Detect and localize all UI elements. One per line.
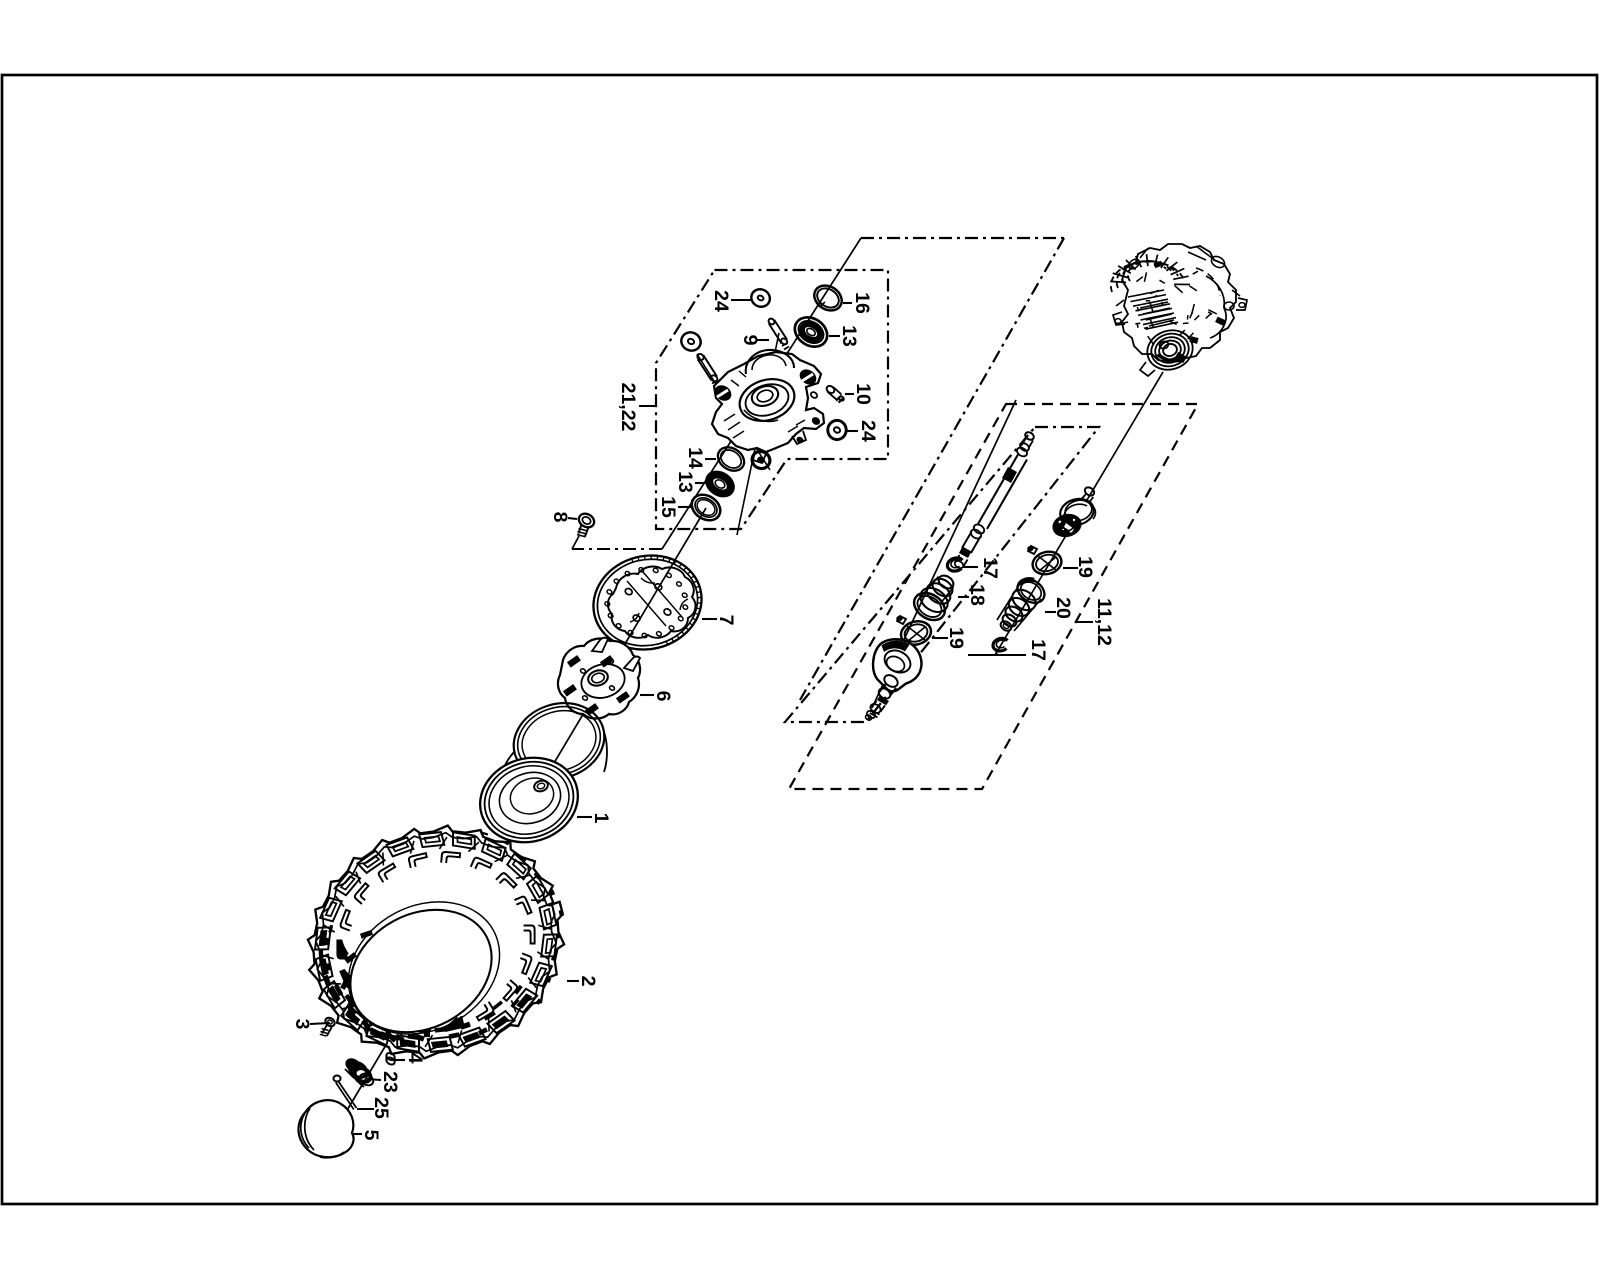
svg-text:8: 8 [549,512,571,523]
svg-text:11,12: 11,12 [1093,598,1115,646]
svg-text:14: 14 [684,447,706,469]
svg-text:19: 19 [945,627,967,649]
svg-text:5: 5 [360,1130,382,1141]
svg-text:13: 13 [838,325,860,347]
svg-text:24: 24 [710,290,732,312]
svg-text:20: 20 [1052,597,1074,619]
svg-text:1: 1 [590,813,612,824]
svg-text:13: 13 [674,471,696,493]
svg-text:17: 17 [1027,639,1049,661]
svg-text:16: 16 [851,292,873,314]
svg-text:3: 3 [291,1019,313,1030]
svg-text:17: 17 [979,557,1001,579]
svg-text:18: 18 [966,584,988,606]
svg-text:15: 15 [657,496,679,518]
svg-text:7: 7 [715,615,737,626]
svg-text:23: 23 [379,1071,401,1093]
svg-text:2: 2 [577,976,599,987]
svg-text:21,22: 21,22 [617,383,639,432]
svg-text:6: 6 [652,691,674,702]
svg-text:24: 24 [857,420,879,442]
svg-text:10: 10 [852,383,874,405]
svg-text:4: 4 [404,1053,426,1064]
